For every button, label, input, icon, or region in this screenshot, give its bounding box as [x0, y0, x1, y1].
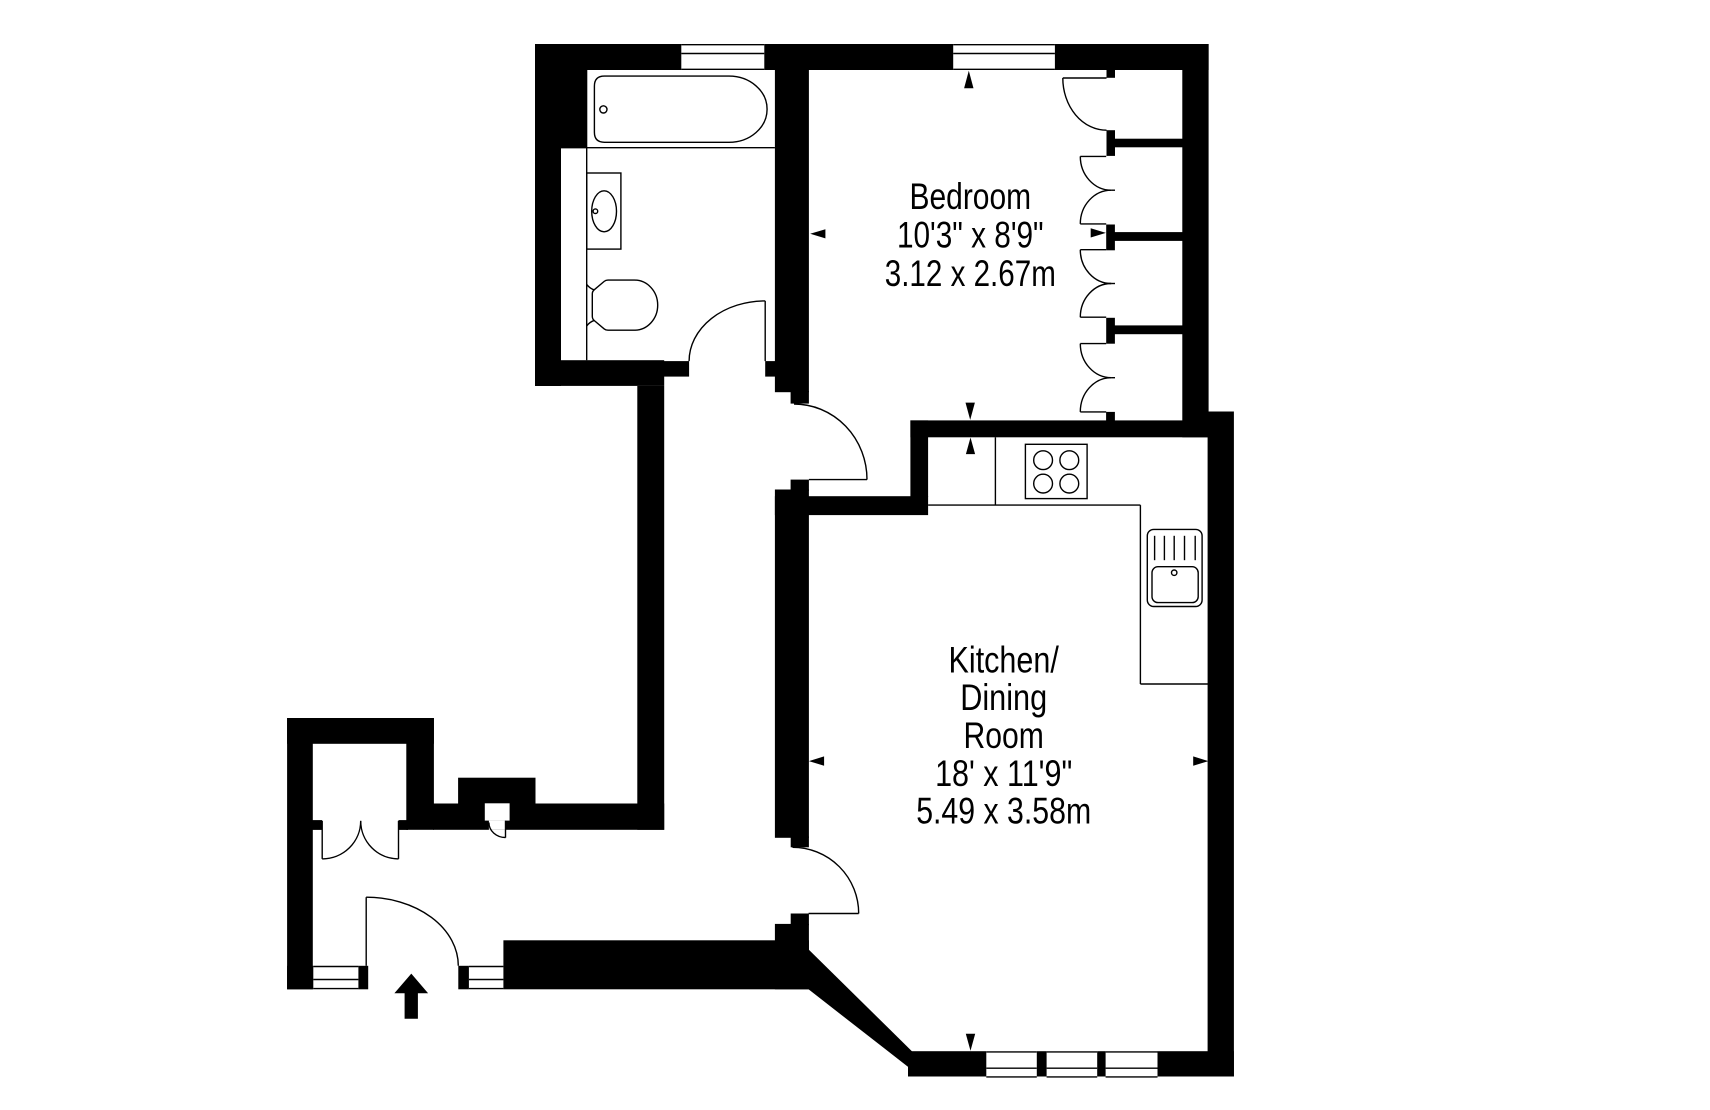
- svg-text:5.49 x 3.58m: 5.49 x 3.58m: [916, 791, 1091, 832]
- svg-text:Dining: Dining: [960, 677, 1047, 718]
- svg-text:Bedroom: Bedroom: [910, 176, 1032, 217]
- svg-text:10'3" x 8'9": 10'3" x 8'9": [897, 215, 1044, 256]
- svg-text:Room: Room: [964, 715, 1044, 756]
- svg-text:18' x 11'9": 18' x 11'9": [935, 753, 1072, 794]
- svg-text:3.12 x 2.67m: 3.12 x 2.67m: [885, 253, 1056, 294]
- svg-text:Kitchen/: Kitchen/: [949, 639, 1060, 680]
